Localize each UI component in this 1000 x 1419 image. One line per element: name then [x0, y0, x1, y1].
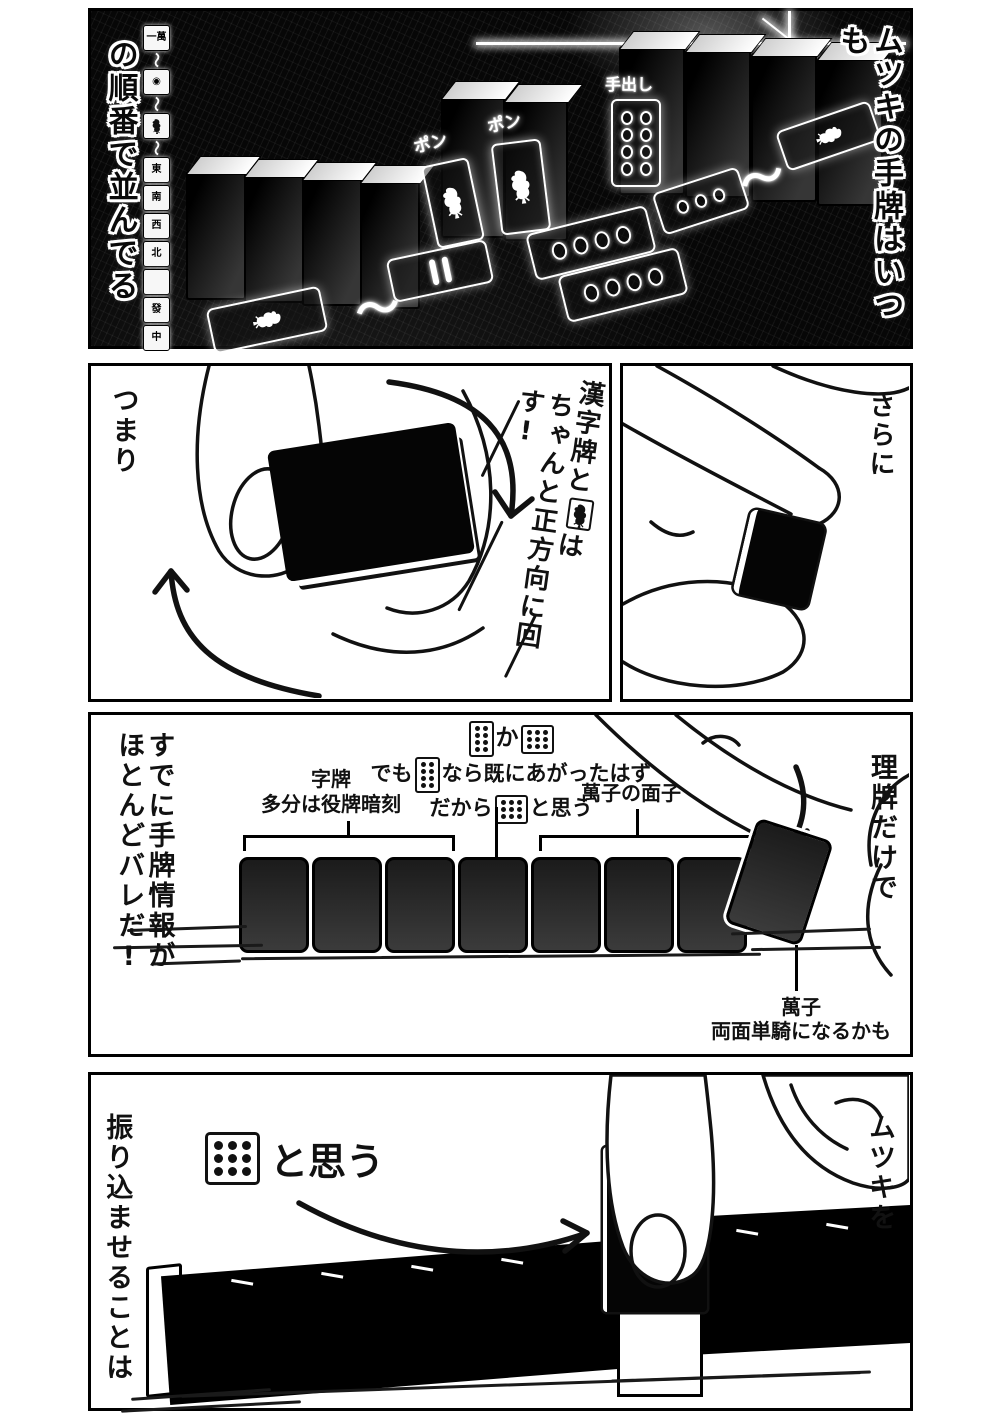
hand-tile [239, 857, 309, 953]
order-tile: 東 [143, 157, 170, 183]
note-line3-before: だから [430, 795, 493, 820]
manzu-meld-label: 萬子の面子 [546, 781, 716, 806]
bracket2-tick [636, 809, 639, 837]
tedashi-tile [611, 99, 661, 187]
honor-tiles-label: 字牌 多分は役牌暗刻 [241, 767, 421, 817]
panel-2-rotate-tile: つまり 漢字牌とは ちゃんと正方向に回す! [88, 363, 612, 702]
pin-tile-icon [495, 795, 528, 824]
hand-tile [385, 857, 455, 953]
separated-label-line1: 萬子 [711, 995, 891, 1019]
panel-3-hand-analysis: か でもなら既にあがったはず だからと思う 字牌 多分は役牌暗刻 萬子の面子 [88, 712, 913, 1057]
caption-left-block: すでに手牌情報が ほとんどバレだ! [103, 731, 173, 1054]
corner-caption: さらに [865, 392, 894, 479]
panel-4-push-tile: と思う [88, 1072, 913, 1411]
bracket-manzu-meld [539, 835, 754, 851]
note-line1-text: か [496, 724, 519, 751]
tile-order-strip: 一萬〜◉〜〜東南西北發中 [143, 25, 170, 351]
caption-right: ムツキを [864, 1113, 894, 1233]
caption-left-line1: すでに手牌情報が [143, 731, 174, 971]
wave-glyph: 〜 [149, 52, 163, 67]
panel-2-pinch-tile: さらに [620, 363, 913, 702]
order-tile: 發 [143, 297, 170, 323]
one-sou-tile [143, 113, 170, 139]
tile-back [244, 174, 304, 303]
order-tile: 西 [143, 213, 170, 239]
hand-tile [312, 857, 382, 953]
hand-tile [458, 857, 528, 953]
pointer-arrow-svg [91, 1075, 909, 1407]
caption-right: ムツキの手牌はいつも [835, 25, 902, 346]
wave-glyph: 〜 [149, 96, 163, 111]
order-tile [143, 269, 170, 295]
hand-tile [531, 857, 601, 953]
note-pointer-line [495, 807, 498, 859]
caption-left: 振り込ませることは [101, 1113, 131, 1383]
sou-chain-pattern [621, 111, 652, 176]
tile-back [186, 171, 246, 300]
one-sou-bird-icon [249, 305, 285, 335]
hand-tile [604, 857, 674, 953]
bracket-honor-tiles [243, 835, 455, 851]
separated-tile-label: 萬子 両面単騎になるかも [711, 995, 891, 1043]
wave-glyph: 〜 [149, 140, 163, 155]
corner-caption: つまり [107, 386, 137, 476]
honor-label-line2: 多分は役牌暗刻 [241, 792, 421, 817]
hand-tile-row [239, 857, 747, 953]
one-sou-tile-icon [565, 497, 594, 531]
caption-left: の順番で並んでる [103, 39, 137, 303]
honor-label-line1: 字牌 [241, 767, 421, 792]
order-tile: 一萬 [143, 25, 170, 51]
panel-1-table-scene: ポン ポン 手出し 〜 〜 [88, 8, 913, 349]
tedashi-label: 手出し [605, 71, 653, 95]
manga-page: ポン ポン 手出し 〜 〜 [0, 0, 1000, 1419]
caption-left-line2: ほとんどバレだ! [113, 731, 143, 975]
pin-tile-icon [521, 725, 554, 754]
caption-col1-after: は [551, 530, 585, 563]
order-tile: 北 [143, 241, 170, 267]
separated-label-line2: 両面単騎になるかも [711, 1019, 891, 1043]
one-sou-bird-icon [505, 166, 537, 207]
separated-pointer-line [795, 945, 798, 991]
order-tile: ◉ [143, 69, 170, 95]
pin-tile-icon [469, 721, 494, 757]
note-line1: か [341, 721, 681, 757]
order-tile: 中 [143, 325, 170, 351]
order-tile: 南 [143, 185, 170, 211]
caption-right: 理牌だけで [866, 753, 896, 903]
one-sou-bird-icon [437, 183, 470, 224]
